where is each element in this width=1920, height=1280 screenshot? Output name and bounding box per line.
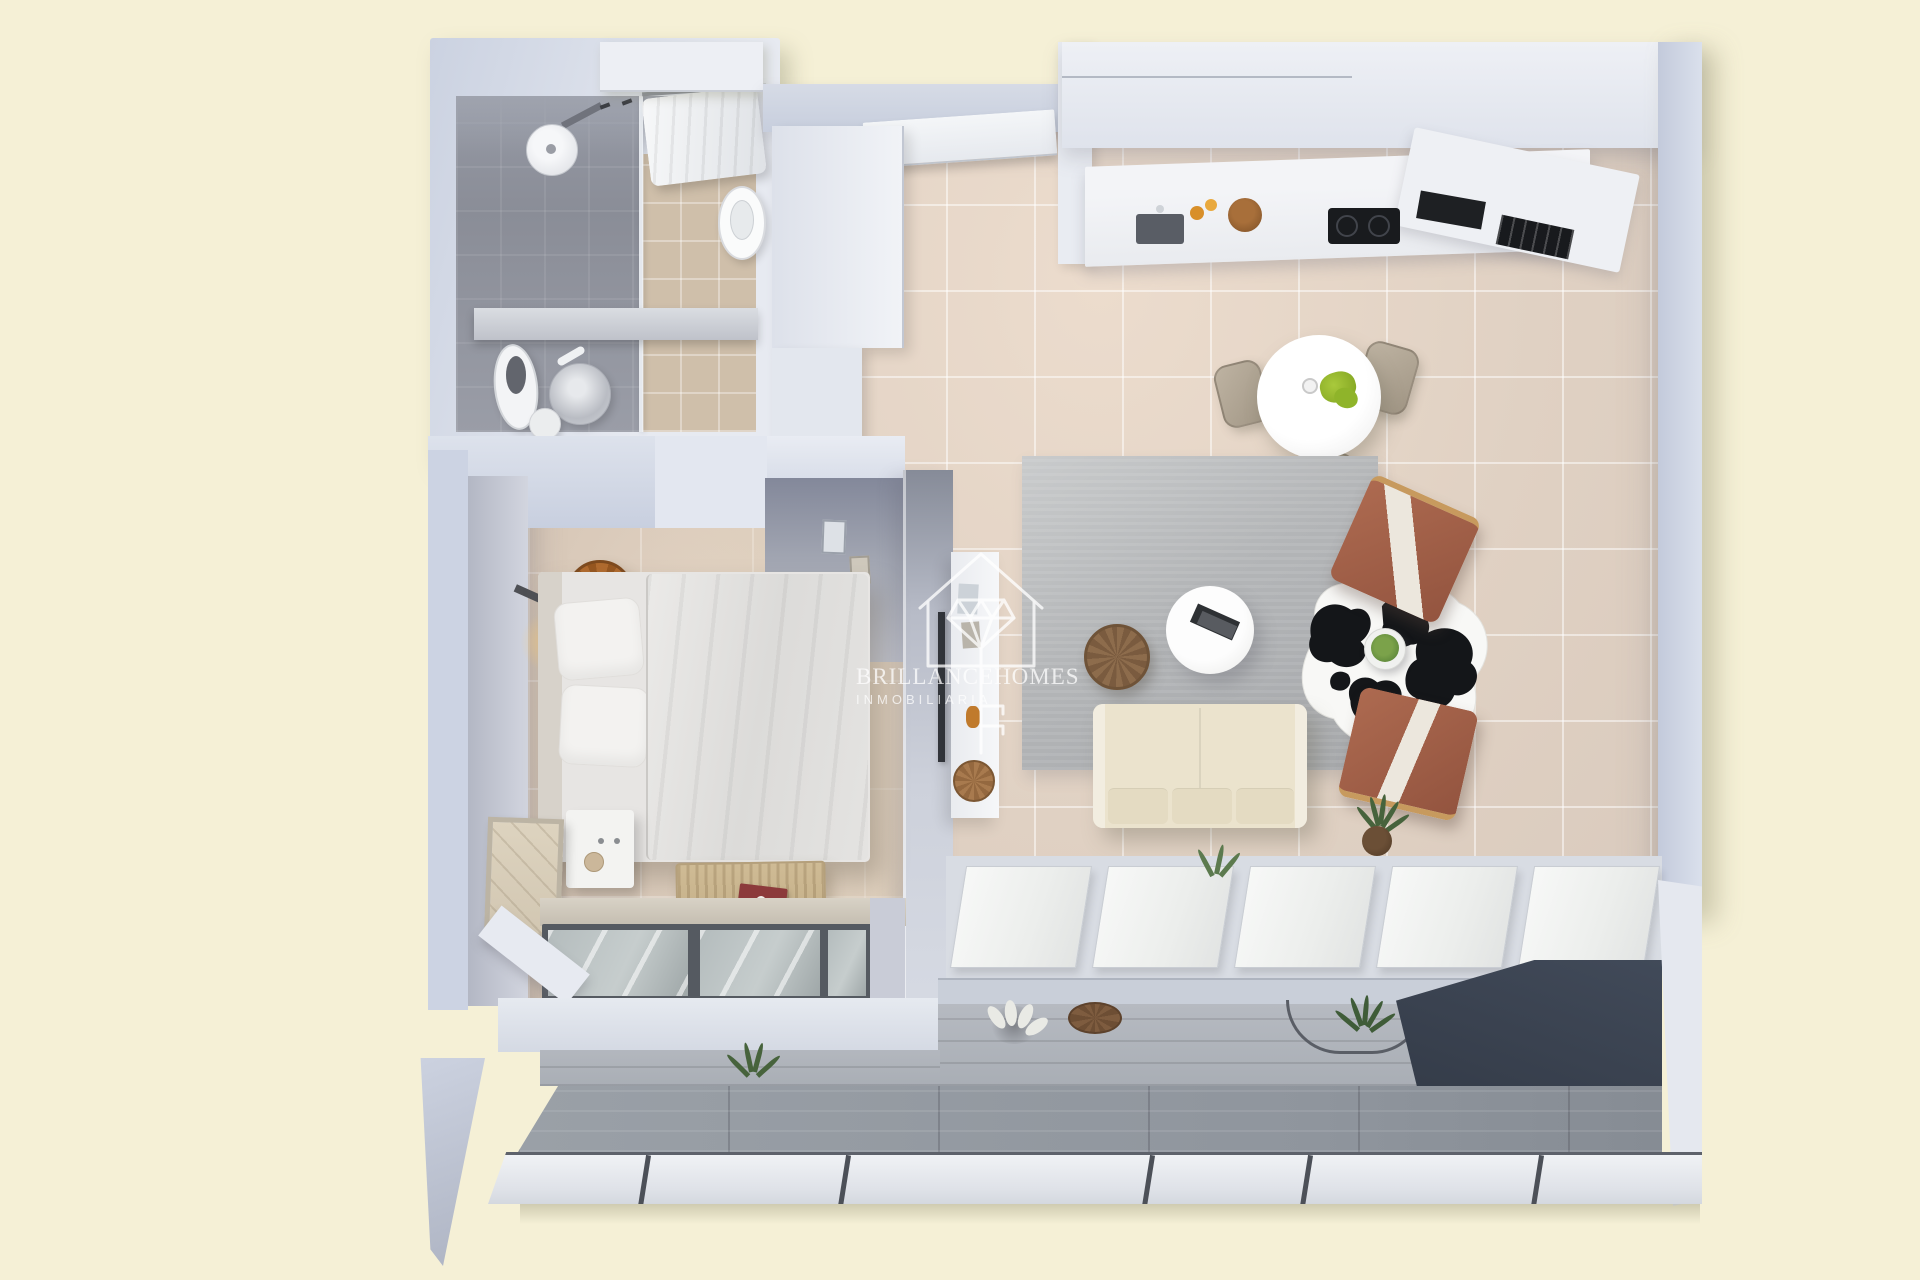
cooktop-burner-icon (1368, 215, 1390, 237)
bedroom-north-wall-corner (655, 436, 767, 528)
railing-post-icon (1531, 1155, 1544, 1207)
window-pane (828, 930, 866, 996)
nightstand-tray (584, 852, 604, 872)
left-outer-wall (428, 450, 468, 1010)
floor-plan-render: BRILLANCE HOMES INMOBILIARIA (0, 0, 1920, 1280)
cabinet-edge-line (1062, 76, 1352, 78)
kitchen-right-wall (1658, 42, 1702, 914)
wall-art-frame-icon (821, 520, 846, 555)
shelf-frame-icon (961, 621, 981, 648)
sliding-glass-door-panel (950, 866, 1092, 968)
decor-basket (953, 760, 995, 802)
dining-table (1257, 335, 1381, 459)
glass-railing (488, 1152, 1702, 1204)
top-wall-white-block (600, 42, 763, 92)
toilet-bowl (730, 200, 754, 240)
sofa-cushion (1236, 788, 1294, 824)
tv (938, 612, 945, 762)
shower-glass-screen (639, 96, 643, 432)
window-east-wall-bit (870, 898, 905, 1004)
fruit-bowl (1228, 198, 1262, 232)
sink-faucet-icon (1156, 205, 1164, 213)
sofa-arm-left (1093, 704, 1105, 828)
wardrobe-lower (772, 348, 862, 450)
sofa-arm-right (1295, 704, 1307, 828)
bottle-icon (1205, 199, 1217, 211)
terrace-white-band-left (498, 998, 942, 1052)
railing-post-icon (838, 1155, 851, 1207)
railing-post-icon (1300, 1155, 1313, 1207)
terrace-hanging-basket (1068, 1002, 1122, 1034)
terrace-floor (518, 1086, 1662, 1152)
potted-plant (1358, 800, 1398, 860)
towels (641, 85, 767, 186)
railing-post-icon (638, 1155, 651, 1207)
railing-post-icon (1142, 1155, 1155, 1207)
shelf-frame-icon (957, 583, 979, 614)
door-sprig-plant (1196, 846, 1236, 886)
nightstand (566, 810, 634, 888)
window-pane (700, 930, 820, 996)
bottle-icon (1190, 206, 1204, 220)
window-overhang-plant (730, 1046, 774, 1090)
shower-head-center (546, 144, 556, 154)
cooktop-burner-icon (1336, 215, 1358, 237)
sofa-cushion (1108, 788, 1168, 824)
window-sill (540, 898, 906, 926)
sliding-glass-door-panel (1234, 866, 1376, 968)
shelf-bottle-icon (966, 706, 980, 728)
terrace-white-plant (986, 1000, 1042, 1046)
terrace-spiky-plant (1342, 1000, 1386, 1044)
tray-plant-icon (1371, 634, 1399, 662)
pillow (558, 684, 650, 768)
sofa-seam (1199, 708, 1201, 788)
pillow (553, 596, 645, 681)
railing-ground-shadow (520, 1204, 1700, 1224)
woven-pouf (1084, 624, 1150, 690)
vanity-counter (474, 308, 758, 340)
kitchen-upper-cabinets (1062, 42, 1700, 148)
nightstand-knob-icon (614, 838, 620, 844)
table-cup (1302, 378, 1318, 394)
sliding-glass-door-panel (1376, 866, 1518, 968)
wardrobe (772, 126, 904, 348)
bidet-bowl (506, 356, 526, 394)
left-wall-bottom-spike (415, 1058, 485, 1266)
sliding-glass-door-panel (1518, 866, 1660, 968)
nightstand-knob-icon (598, 838, 604, 844)
kitchen-sink (1136, 214, 1184, 244)
duvet (646, 574, 868, 860)
sofa-cushion (1172, 788, 1232, 824)
plant-pot (1362, 826, 1392, 856)
